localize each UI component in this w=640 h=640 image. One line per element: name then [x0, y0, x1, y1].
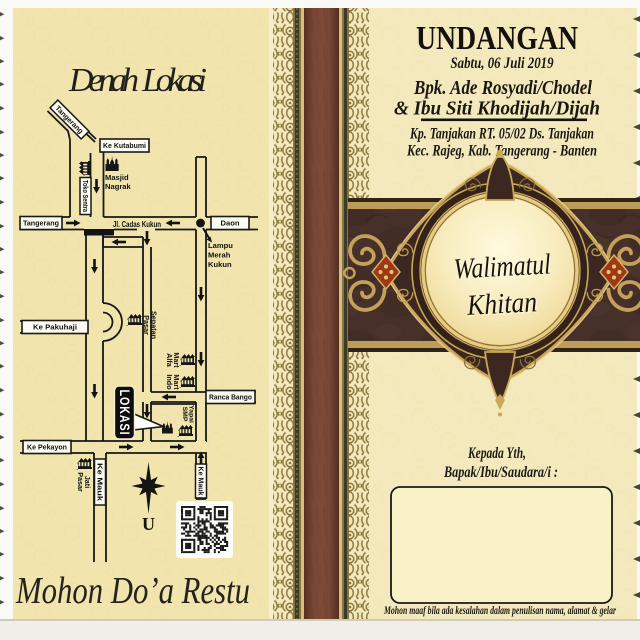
svg-text:Jati: Jati: [83, 476, 92, 488]
svg-text:Khitan: Khitan: [465, 286, 537, 322]
svg-text:Ke Pakuhaji: Ke Pakuhaji: [33, 323, 77, 332]
svg-text:Ke Pekayon: Ke Pekayon: [27, 443, 67, 452]
svg-text:Jl. Cadas Kukun: Jl. Cadas Kukun: [113, 220, 161, 229]
svg-text:Denah Lokasi: Denah Lokasi: [68, 62, 207, 99]
svg-text:Bapak/Ibu/Saudara/i :: Bapak/Ibu/Saudara/i :: [443, 464, 558, 481]
svg-text:Mart: Mart: [172, 352, 181, 368]
svg-text:Tangerang: Tangerang: [23, 219, 59, 228]
svg-text:Nagrak: Nagrak: [105, 182, 132, 191]
svg-text:Daon: Daon: [221, 219, 240, 228]
svg-text:Ke Mauk: Ke Mauk: [95, 463, 104, 502]
svg-text:Mohon Do’a Restu: Mohon Do’a Restu: [15, 570, 250, 612]
svg-text:Ranca Bango: Ranca Bango: [209, 393, 252, 402]
svg-text:Walimatul: Walimatul: [453, 248, 552, 285]
svg-text:Kp. Tanjakan RT. 05/02 Ds. Tan: Kp. Tanjakan RT. 05/02 Ds. Tanjakan: [409, 126, 594, 143]
svg-text:Kukun: Kukun: [208, 260, 232, 269]
svg-text:Mohon maaf bila ada kesalahan: Mohon maaf bila ada kesalahan dalam penu…: [383, 605, 616, 617]
svg-text:& Ibu Siti Khodijah/Dijah: & Ibu Siti Khodijah/Dijah: [394, 98, 600, 120]
svg-text:Ke Mauk: Ke Mauk: [196, 467, 205, 496]
svg-text:SMP: SMP: [181, 407, 188, 422]
svg-text:Toko Sentra: Toko Sentra: [81, 180, 88, 212]
svg-text:Masjid: Masjid: [105, 173, 129, 182]
svg-text:Merah: Merah: [208, 251, 231, 260]
svg-text:Ke Kutabumi: Ke Kutabumi: [103, 141, 146, 150]
svg-text:LOKASI: LOKASI: [117, 390, 132, 436]
svg-text:U: U: [142, 514, 155, 534]
svg-text:Bpk. Ade Rosyadi/Chodel: Bpk. Ade Rosyadi/Chodel: [413, 77, 592, 99]
svg-text:UNDANGAN: UNDANGAN: [416, 20, 578, 57]
svg-text:Yapai: Yapai: [187, 405, 194, 423]
svg-text:Sabtu, 06 Juli 2019: Sabtu, 06 Juli 2019: [451, 55, 554, 72]
svg-text:Sepatan: Sepatan: [149, 311, 158, 339]
svg-text:Mart: Mart: [172, 374, 181, 390]
svg-text:Kepada Yth,: Kepada Yth,: [467, 445, 526, 462]
